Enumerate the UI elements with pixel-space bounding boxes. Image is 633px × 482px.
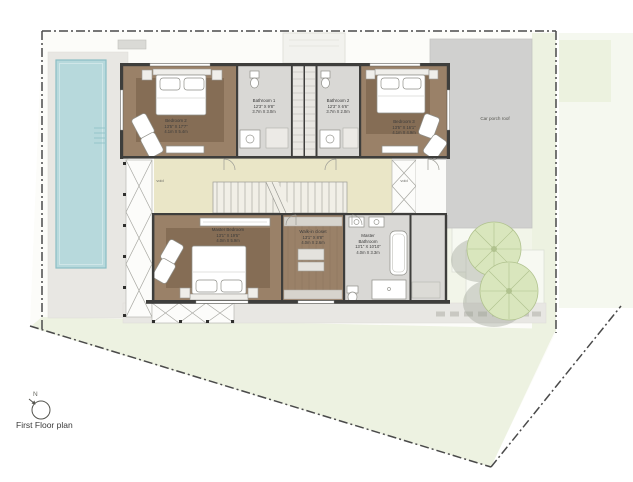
deck-screen-bottom <box>152 303 234 323</box>
staircase <box>213 182 347 213</box>
headboard <box>375 69 429 75</box>
nightstand <box>142 70 152 80</box>
bench <box>382 146 418 153</box>
shower <box>266 128 288 148</box>
headboard <box>190 294 248 300</box>
nightstand <box>366 70 375 79</box>
sink <box>369 217 384 227</box>
nightstand <box>429 70 438 79</box>
floor-plan-drawing <box>0 0 633 482</box>
vanity <box>240 130 260 148</box>
void-screen-left <box>126 160 152 317</box>
bench <box>166 146 204 153</box>
entry-walkway <box>283 33 345 63</box>
closet-island <box>298 249 324 260</box>
pillow <box>403 78 421 89</box>
room-walk-in-closet <box>282 215 344 301</box>
headboard <box>153 69 211 75</box>
toilet <box>321 71 330 78</box>
toilet <box>250 71 259 78</box>
void-screen-right <box>392 160 446 213</box>
north-letter: N <box>33 391 38 398</box>
pillow <box>196 280 217 292</box>
nightstand <box>248 288 258 298</box>
shower <box>372 280 406 299</box>
swimming-pool <box>56 60 106 268</box>
counter <box>412 282 440 298</box>
pillow <box>381 78 399 89</box>
pillow <box>221 280 242 292</box>
void-label-left: void <box>150 178 170 183</box>
plan-title: First Floor plan <box>16 420 73 430</box>
nightstand <box>212 70 222 80</box>
pillow <box>160 78 180 90</box>
vanity <box>320 130 340 148</box>
car-porch-label: Car porch roof <box>455 116 535 121</box>
ac-pad <box>118 40 146 49</box>
north-compass <box>29 399 50 419</box>
void-label-right: void <box>394 178 414 183</box>
pool-area <box>48 52 128 318</box>
nightstand <box>180 288 190 298</box>
pillow <box>184 78 204 90</box>
shower <box>343 128 358 148</box>
floor-plan-page: Bedroom 2 13'5" X 17'7" 4.1m X 5.4m Bath… <box>0 0 633 482</box>
